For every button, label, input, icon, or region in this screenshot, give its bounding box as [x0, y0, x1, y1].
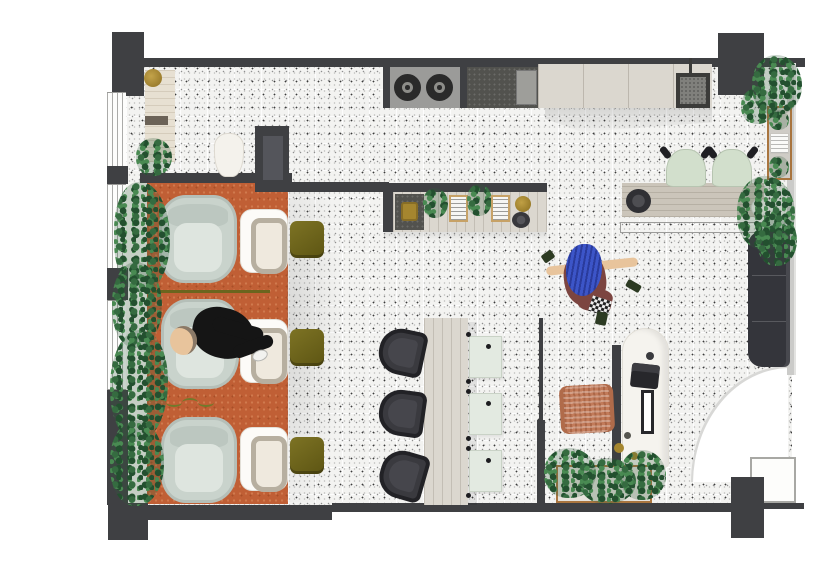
- panel-foot: [486, 401, 491, 406]
- panel-foot: [466, 446, 471, 451]
- gold-bowl: [515, 196, 531, 212]
- washbasin-1: [240, 209, 288, 273]
- desk-mirror: [641, 390, 654, 434]
- rattan-chair: [563, 384, 611, 434]
- dark-plate: [512, 212, 530, 228]
- shelf-plant-bottom: [769, 156, 789, 178]
- seat-panel-2: [469, 393, 502, 435]
- kitchen-sink: [676, 73, 710, 108]
- plant-top-right-2: [741, 88, 775, 124]
- pastry-tray-2: [491, 195, 510, 222]
- wall-corner-bottom-left: [108, 503, 148, 540]
- wall-island-link: [289, 182, 389, 192]
- wall-bottom-a: [147, 505, 332, 520]
- pastry-tray-1: [449, 195, 468, 222]
- burner-icon: [394, 74, 421, 101]
- client-head: [170, 326, 197, 355]
- burner-icon: [426, 74, 453, 101]
- desk-item-dot: [646, 352, 654, 360]
- panel-foot: [486, 458, 491, 463]
- interior-pier-panel: [263, 136, 283, 180]
- floor-plan: [0, 0, 820, 562]
- plant-left-4: [110, 420, 164, 506]
- island-plant-2: [467, 184, 492, 216]
- panel-foot: [466, 389, 471, 394]
- brass-tray: [401, 202, 418, 221]
- bar-counter: [424, 318, 468, 505]
- dark-dot: [624, 432, 631, 439]
- window-left-1: [107, 92, 126, 168]
- wall-pier-top-left: [112, 32, 144, 96]
- laptop-icon: [630, 363, 660, 390]
- olive-stool-2: [290, 329, 324, 366]
- olive-stool-3: [290, 437, 324, 474]
- faucet-icon: [689, 58, 692, 75]
- table-plate: [626, 189, 651, 213]
- seat-panel-3: [469, 450, 502, 492]
- washbasin-3: [240, 427, 288, 491]
- shelf-towels: [770, 133, 789, 154]
- desk-drawer: [145, 116, 168, 125]
- plant-right-mid-2: [757, 214, 797, 266]
- panel-foot: [466, 332, 471, 337]
- kitchen-small-sink: [516, 70, 537, 105]
- wall-left-block-a: [107, 166, 128, 184]
- panel-foot: [466, 436, 471, 441]
- salon-chair-1: [159, 195, 237, 283]
- seat-panel-1: [469, 336, 502, 378]
- white-vase: [214, 133, 244, 177]
- partition-thin: [539, 318, 543, 422]
- wall-pier-bottom-right: [731, 477, 764, 538]
- gold-dot: [614, 443, 624, 453]
- rug-shelf-line: [152, 290, 270, 293]
- reception-plant: [136, 138, 172, 176]
- island-plant-1: [423, 188, 448, 218]
- wall-bottom-b: [332, 503, 732, 512]
- kitchen-divider-mid: [460, 67, 467, 108]
- cooktop: [390, 67, 460, 108]
- wall-bottom-right-thin: [762, 503, 804, 509]
- kitchen-divider-left: [383, 67, 390, 108]
- olive-stool-1: [290, 221, 324, 258]
- salon-chair-3: [161, 417, 237, 503]
- panel-foot: [466, 493, 471, 498]
- panel-foot: [466, 379, 471, 384]
- partition-thick: [537, 420, 545, 508]
- brass-stool: [144, 69, 162, 87]
- planter-plants-3: [620, 450, 666, 500]
- island-shadow: [385, 232, 547, 240]
- panel-foot: [486, 344, 491, 349]
